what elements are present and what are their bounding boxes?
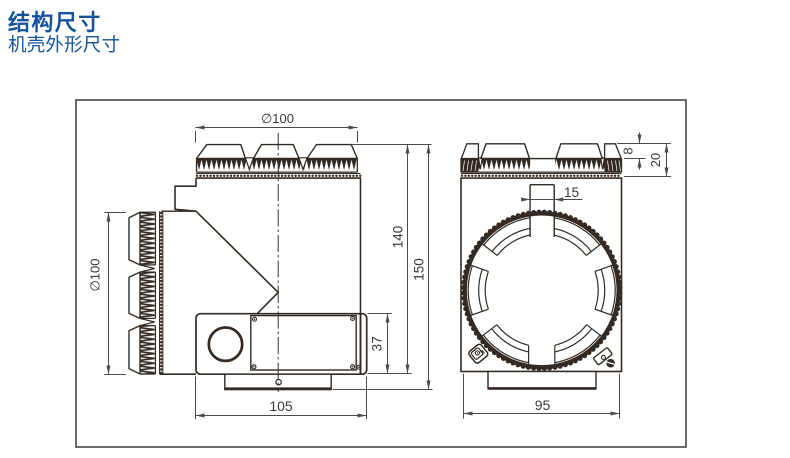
svg-text:15: 15 xyxy=(564,185,579,200)
svg-text:20: 20 xyxy=(648,153,663,167)
svg-text:∅100: ∅100 xyxy=(261,111,294,126)
svg-text:150: 150 xyxy=(412,258,427,281)
svg-text:8: 8 xyxy=(621,147,636,154)
svg-text:∅100: ∅100 xyxy=(88,258,103,291)
svg-text:140: 140 xyxy=(391,226,406,249)
svg-text:95: 95 xyxy=(535,397,551,413)
svg-text:37: 37 xyxy=(370,336,385,351)
svg-text:105: 105 xyxy=(269,398,293,414)
